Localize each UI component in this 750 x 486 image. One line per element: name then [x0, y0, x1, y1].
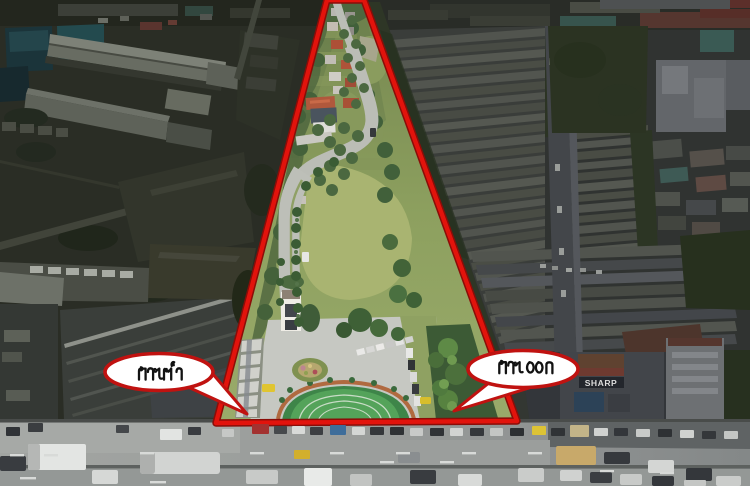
svg-text:SHARP: SHARP: [585, 378, 618, 388]
